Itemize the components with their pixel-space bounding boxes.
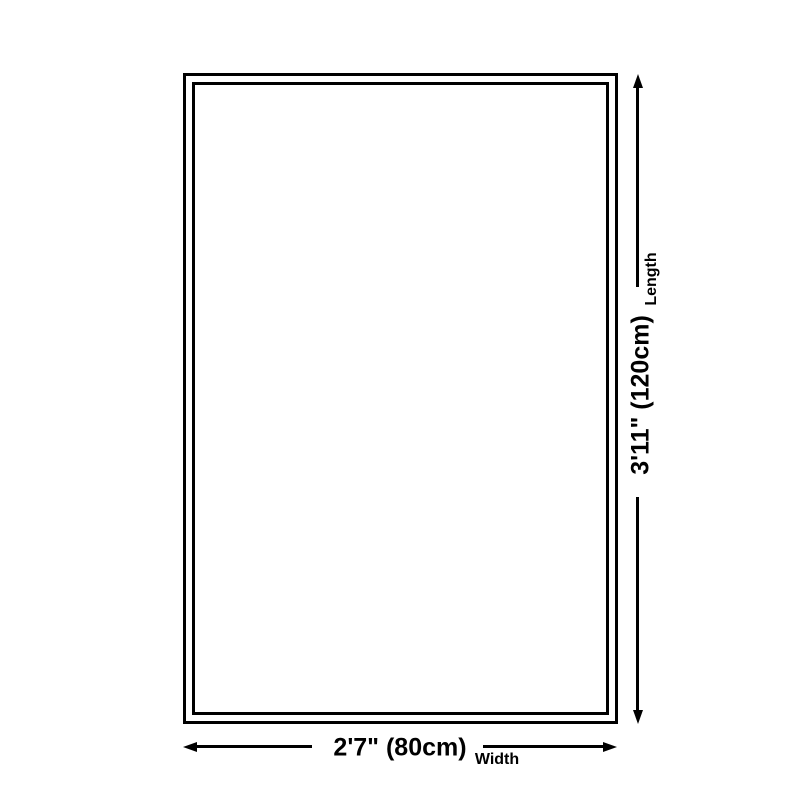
dimension-line-segment: [636, 497, 639, 712]
width-label: Width: [475, 752, 519, 768]
size-diagram: 2'7" (80cm) Width 3'11" (120cm) Length: [0, 0, 800, 800]
product-outline-inner: [192, 82, 609, 715]
dimension-line-segment: [195, 745, 312, 748]
length-label: Length: [644, 252, 660, 305]
length-value: 3'11" (120cm): [629, 315, 654, 475]
dimension-line-segment: [636, 86, 639, 287]
arrow-down-icon: [633, 710, 643, 724]
dimension-line-segment: [483, 745, 605, 748]
arrow-right-icon: [603, 742, 617, 752]
product-outline-outer: [183, 73, 618, 724]
width-value: 2'7" (80cm): [333, 736, 466, 761]
